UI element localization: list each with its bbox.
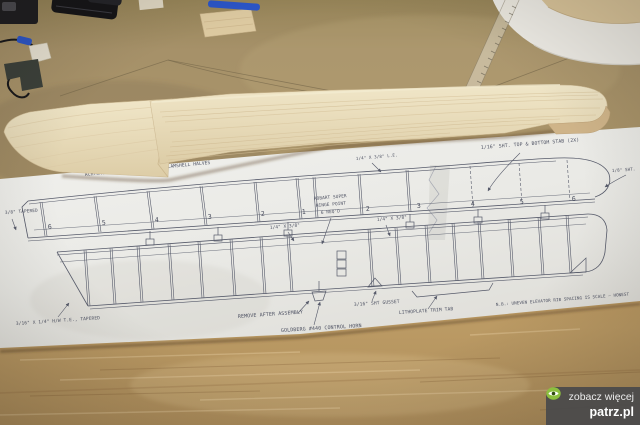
watermark-brand: patrz.pl — [590, 404, 634, 420]
photo-vignette — [0, 0, 640, 425]
photo-scene: ACHTUNG! STAB IS BUILT IN 2 CLAMSHELL HA… — [0, 0, 640, 425]
watermark: zobacz więcej patrz.pl — [546, 387, 640, 425]
watermark-text: zobacz więcej — [556, 391, 634, 404]
photo-stage: ACHTUNG! STAB IS BUILT IN 2 CLAMSHELL HA… — [0, 0, 640, 425]
